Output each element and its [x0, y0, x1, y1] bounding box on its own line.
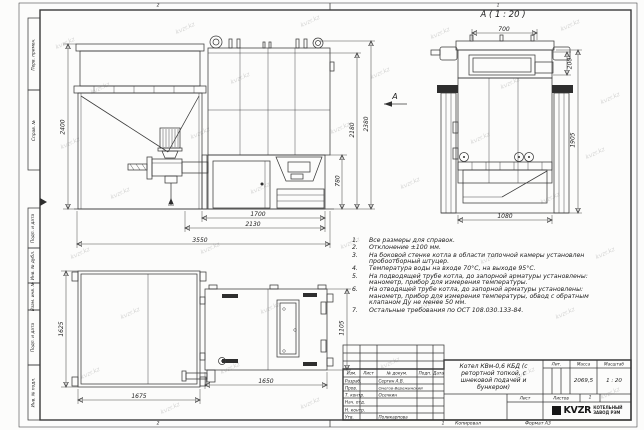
hopper-slope-left: [81, 96, 168, 152]
zone-number-bottom-2: 2: [157, 421, 160, 426]
note-number: 5.: [349, 274, 369, 287]
technical-notes: 1.Все размеры для справок. 2.Отклонение …: [349, 238, 637, 315]
note-number: 3.: [349, 253, 369, 266]
tb-sheets-value: 1: [589, 396, 592, 401]
dim-furnace-width: 1700: [250, 211, 265, 218]
hopper-slope-right: [168, 96, 199, 152]
ash-drawer: [277, 189, 324, 208]
margin-box-inv-podl: Инв. № подл.: [28, 365, 40, 420]
margin-label: Подп. и дата: [32, 323, 37, 352]
note-number: 2.: [349, 245, 369, 252]
note-text: Отклонение ±100 мм.: [369, 245, 597, 252]
kvzr-org-name: КОТЕЛЬНЫЙ ЗАВОД РЭМ: [593, 406, 622, 415]
dim-total-width: 3550: [192, 237, 207, 244]
dim-detail-collar: 200: [567, 58, 574, 70]
dim-detail-top-width: 700: [498, 26, 510, 33]
kvzr-logo-icon: [552, 406, 561, 415]
margin-label: Взам. инв. №: [32, 282, 37, 311]
margin-label: Перв. примен.: [32, 38, 37, 70]
note-item: 6.На отводящей трубе котла, до запорной …: [349, 287, 637, 307]
retort-burner: [276, 157, 322, 181]
dim-detail-base: 1080: [497, 213, 512, 220]
tb-scale-label: Масштаб: [604, 362, 624, 367]
margin-box-perv-primen: Перв. примен.: [28, 18, 40, 90]
detail-view-a: [431, 35, 573, 213]
dim-body-height: 2180: [349, 122, 356, 137]
tb-role-razrab: Разраб.: [345, 378, 361, 383]
format-label: Формат А3: [525, 421, 551, 426]
zone-number-top-1: 1: [497, 4, 500, 9]
tb-role-tkontr: Т. контр.: [345, 392, 364, 397]
view-arrow-label: А: [391, 92, 397, 101]
margin-box-podp1: Подп. и дата: [28, 208, 40, 248]
dim-plan-boiler-depth: 1105: [339, 320, 346, 335]
dim-boiler-width: 2130: [245, 221, 260, 228]
zone-number-bottom-1: 1: [442, 421, 445, 426]
kvzr-org-line2: ЗАВОД РЭМ: [593, 411, 622, 416]
dim-plan-bunker-width: 1675: [131, 393, 146, 400]
margin-label: Подп. и дата: [32, 213, 37, 242]
support-leg-left: [441, 93, 456, 213]
margin-box-sprav: Справ. №: [28, 90, 40, 170]
kvzr-logo-text: KVZR: [563, 405, 591, 416]
tb-sheet-label: Лист: [520, 396, 531, 401]
note-number: 7.: [349, 308, 369, 315]
note-text: На подводящей трубе котла, до запорной а…: [369, 274, 597, 287]
tb-header-doc: № докум.: [387, 371, 408, 376]
tb-name-prov: Онегов-Вережинский: [379, 385, 423, 390]
drawing-canvas: 2400 780 2180 2380 1700 2130 3550 А ( 1 …: [0, 0, 644, 430]
margin-label: Справ. №: [32, 120, 37, 141]
note-text: Остальные требования по ОСТ 108.030.133-…: [369, 308, 597, 315]
drawing-sheet: kvzr.kzkvzr.kzkvzr.kzkvzr.kzkvzr.kzkvzr.…: [0, 0, 644, 430]
detail-view-title: А ( 1 : 20 ): [479, 10, 525, 20]
tb-name-utv: Поликарпова: [379, 414, 408, 419]
tb-header-sign: Подп.: [419, 371, 432, 376]
zone-number-top-2: 2: [157, 4, 160, 9]
plan-view: [72, 271, 333, 387]
note-item: 7.Остальные требования по ОСТ 108.030.13…: [349, 308, 637, 315]
dim-plan-boiler-length: 1650: [258, 378, 273, 385]
note-text: На боковой стенке котла в области топочн…: [369, 253, 597, 266]
margin-label: Инв. № дубл.: [32, 251, 37, 280]
tb-role-nkontr: Н. контр.: [345, 407, 365, 412]
dim-bunker-height: 2400: [60, 119, 67, 134]
tb-header-izm: Изм.: [347, 371, 357, 376]
dim-plan-bunker-depth: 1625: [58, 321, 65, 336]
centering-mark: [40, 198, 47, 206]
tb-role-nachotd: Нач. отд.: [345, 400, 365, 405]
margin-box-podp2: Подп. и дата: [28, 310, 40, 365]
margin-label: Инв. № подл.: [32, 378, 37, 408]
tb-role-utv: Утв.: [345, 414, 354, 419]
sheet-frame: [19, 3, 637, 427]
tb-scale-value: 1 : 20: [606, 378, 622, 384]
copied-label: Копировал: [455, 421, 481, 426]
margin-box-inv-dubl: Инв. № дубл.: [28, 248, 40, 283]
note-item: 2.Отклонение ±100 мм.: [349, 245, 637, 252]
note-item: 4.Температура воды на входе 70°С, на вых…: [349, 266, 637, 273]
note-item: 3.На боковой стенке котла в области топо…: [349, 253, 637, 266]
tb-header-date: Дата: [433, 371, 444, 376]
note-number: 4.: [349, 266, 369, 273]
dimension-labels: 2400 780 2180 2380 1700 2130 3550 А ( 1 …: [58, 10, 577, 400]
boiler-front: [208, 36, 334, 209]
note-number: 6.: [349, 287, 369, 307]
note-item: 5.На подводящей трубе котла, до запорной…: [349, 274, 637, 287]
company-logo: KVZR КОТЕЛЬНЫЙ ЗАВОД РЭМ: [545, 403, 630, 418]
note-text: Температура воды на входе 70°С, на выход…: [369, 266, 597, 273]
document-title: Котел КВм-0,6 КБД (с ретортной топкой, с…: [445, 362, 542, 392]
support-leg-right: [554, 93, 569, 213]
tb-mass-value: 2069,5: [574, 378, 593, 384]
tb-role-prov: Пров.: [345, 385, 357, 390]
tb-mass-label: Масса: [577, 362, 590, 367]
view-arrow: [384, 101, 407, 107]
tb-lit-label: Лит.: [552, 362, 562, 367]
margin-box-vzam-inv: Взам. инв. №: [28, 283, 40, 310]
dim-total-height: 2380: [363, 116, 370, 131]
dim-detail-height: 1905: [570, 132, 577, 147]
tb-name-razrab: Сергин А.В.: [379, 378, 405, 383]
tb-sheets-label: Листов: [553, 396, 569, 401]
note-text: На отводящей трубе котла, до запорной ар…: [369, 287, 597, 307]
dim-furnace-height: 780: [335, 175, 342, 187]
tb-name-tkontr: Осечкин: [379, 392, 398, 397]
screw-feeder: [128, 157, 208, 205]
front-view: [74, 36, 334, 209]
tb-header-list: Лист: [363, 371, 374, 376]
